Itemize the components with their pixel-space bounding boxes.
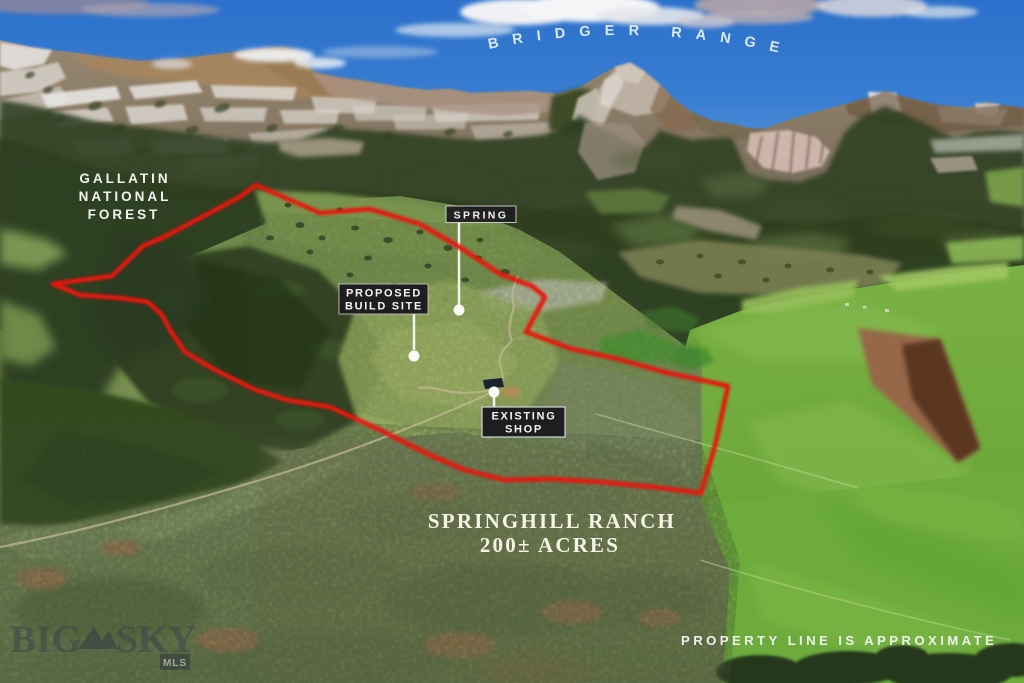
svg-text:BUILD SITE: BUILD SITE xyxy=(345,301,423,313)
svg-text:FOREST: FOREST xyxy=(88,207,161,222)
svg-text:200± ACRES: 200± ACRES xyxy=(480,533,620,557)
svg-text:PROPOSED: PROPOSED xyxy=(346,288,422,300)
svg-text:SPRINGHILL RANCH: SPRINGHILL RANCH xyxy=(428,509,676,533)
svg-text:MLS: MLS xyxy=(163,658,187,669)
svg-text:BIG: BIG xyxy=(10,618,82,661)
svg-text:NATIONAL: NATIONAL xyxy=(79,189,172,204)
svg-text:GALLATIN: GALLATIN xyxy=(79,171,170,186)
svg-text:SHOP: SHOP xyxy=(505,424,543,436)
svg-text:EXISTING: EXISTING xyxy=(492,411,557,423)
svg-text:SPRING: SPRING xyxy=(454,210,509,222)
svg-text:PROPERTY LINE IS APPROXIMATE: PROPERTY LINE IS APPROXIMATE xyxy=(681,633,997,648)
